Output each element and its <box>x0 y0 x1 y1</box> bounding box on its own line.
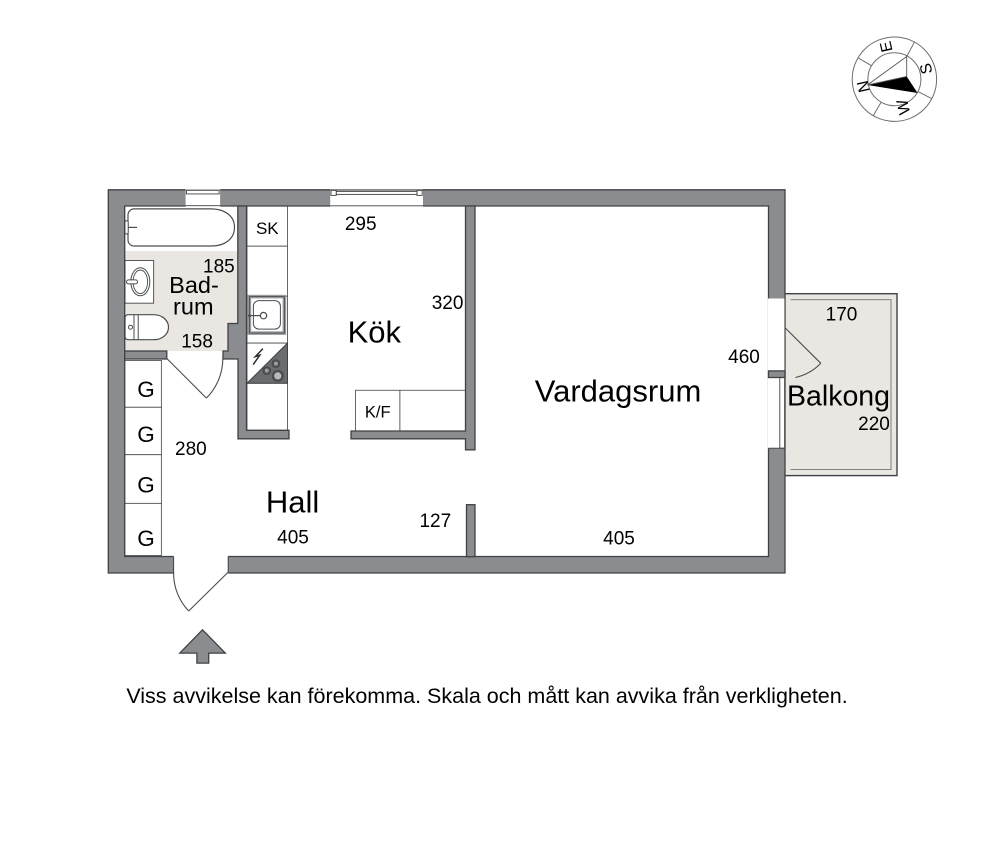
svg-text:280: 280 <box>175 439 207 460</box>
svg-text:G: G <box>137 526 155 551</box>
svg-text:320: 320 <box>432 293 464 314</box>
svg-text:405: 405 <box>277 528 309 549</box>
svg-text:K/F: K/F <box>365 403 391 421</box>
svg-text:G: G <box>137 422 155 447</box>
svg-text:460: 460 <box>728 347 760 368</box>
svg-text:SK: SK <box>256 219 279 238</box>
svg-text:185: 185 <box>203 256 235 277</box>
svg-text:Balkong: Balkong <box>787 381 890 413</box>
svg-text:G: G <box>137 377 155 402</box>
svg-text:220: 220 <box>858 414 890 435</box>
svg-text:Viss avvikelse kan förekomma.: Viss avvikelse kan förekomma. Skala och … <box>126 684 847 708</box>
svg-text:405: 405 <box>603 528 635 549</box>
svg-text:295: 295 <box>345 214 377 235</box>
svg-text:Kök: Kök <box>348 314 402 349</box>
svg-text:G: G <box>137 473 155 498</box>
svg-text:158: 158 <box>181 332 213 353</box>
svg-text:170: 170 <box>826 304 858 325</box>
svg-text:Hall: Hall <box>266 485 319 520</box>
svg-text:127: 127 <box>419 511 451 532</box>
svg-text:rum: rum <box>173 294 213 320</box>
svg-text:Vardagsrum: Vardagsrum <box>535 373 702 408</box>
